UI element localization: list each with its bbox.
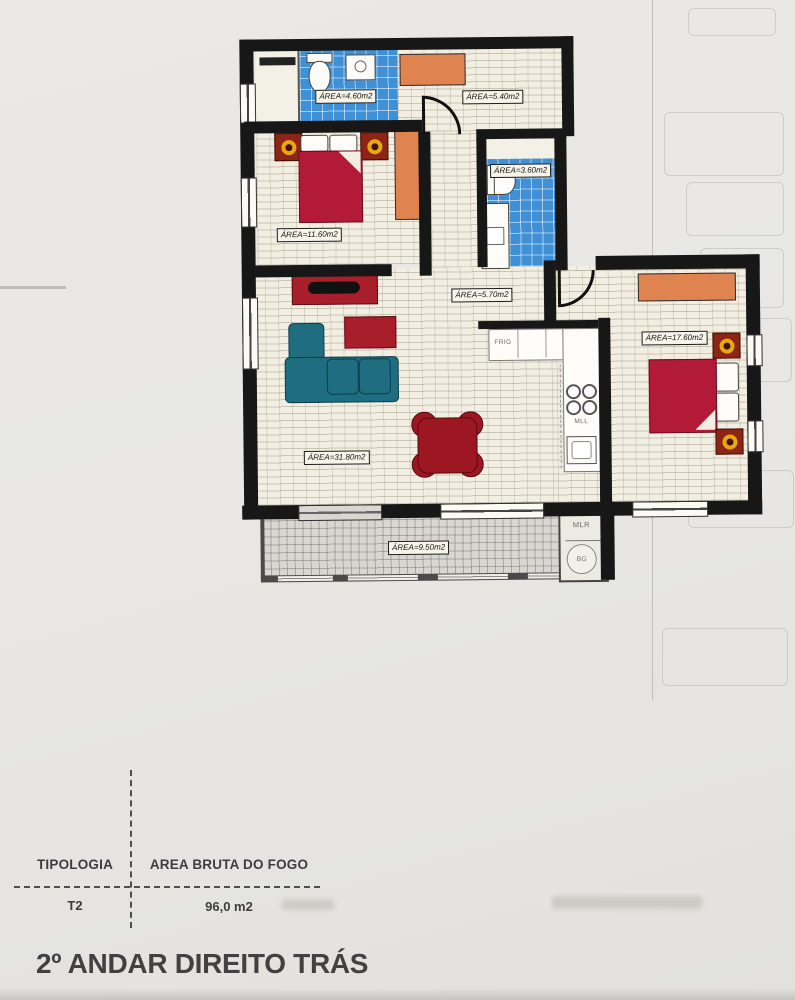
table-value-area-bruta: 96,0 m2 [140,899,318,914]
pillow [715,362,739,391]
area-label-bedroom1: ÁREA=11.60m2 [277,228,342,243]
stove-burner [582,384,597,399]
bedroom2-shelf [638,272,736,301]
pillow [329,134,357,151]
wall [246,264,392,278]
area-label-hall: ÁREA=5.40m2 [462,90,523,105]
wall [600,502,615,580]
table-header-area-bruta: AREA BRUTA DO FOGO [140,857,318,872]
toilet-icon [308,61,330,93]
wall [544,260,557,322]
area-label-hall2: ÁREA=5.70m2 [451,288,512,303]
table-header-tipologia: TIPOLOGIA [20,857,130,872]
bed-sheet-fold [695,410,715,430]
wall [476,128,566,139]
stove-burner [566,384,581,399]
wall [556,256,562,270]
wall [244,120,422,134]
coffee-table [344,316,396,349]
boiler-circle: BG [567,544,597,574]
entry-shelf [259,57,295,65]
bath-sink [486,227,504,245]
window [241,177,258,227]
tv-icon [308,281,360,294]
stove-burner [582,400,597,415]
table-divider-horizontal [14,886,320,888]
hall-cabinet [399,53,465,86]
window [746,334,762,366]
table-value-tipologia: T2 [20,898,130,913]
sofa-cushion [327,358,359,394]
nightstand-lamp [360,132,388,160]
sink-basin [354,60,366,72]
page-title: 2º ANDAR DIREITO TRÁS [36,948,368,980]
kitchen-sink-basin [571,441,591,459]
floorplan: FRIG MLL MLR BG [0,0,795,1000]
fridge-label: FRIG [489,339,516,346]
door-leaf [558,270,561,304]
dishwasher-label: MLL [567,418,595,425]
area-label-living: ÁREA=31.80m2 [304,450,370,465]
area-label-bedroom2: ÁREA=17.60m2 [642,331,708,346]
wall [476,137,487,267]
door-leaf [422,96,425,134]
nightstand-lamp [712,332,740,358]
stove-burner [566,400,581,415]
area-label-balcony: ÁREA=9.50m2 [388,540,449,555]
window [240,83,256,123]
area-label-bathroom1: ÁREA=4.60m2 [315,89,376,104]
window [747,420,763,452]
wall [418,132,432,276]
wall [596,254,760,270]
wardrobe [394,128,421,220]
wall [746,254,763,514]
wall [561,36,574,136]
dining-table [417,417,478,474]
wall [554,136,567,270]
wall [478,320,598,329]
balcony-wall [260,519,265,579]
window [242,297,259,369]
washer-label: MLR [560,520,602,529]
area-label-bathroom2: ÁREA=3.60m2 [490,163,551,178]
table-divider-vertical [130,770,132,928]
balcony-door [298,504,382,521]
window [440,503,544,520]
pillow [715,392,739,421]
bed-sheet-fold [338,151,360,173]
corridor-floor [430,131,477,267]
railing-segment [438,574,508,580]
railing-segment [348,575,418,581]
scanned-floorplan-page: FRIG MLL MLR BG [0,0,795,1000]
wall [598,318,612,514]
nightstand-lamp [715,428,743,454]
railing-segment [278,576,333,582]
sofa-cushion [359,358,391,394]
pillow [300,135,328,152]
scan-shadow [0,988,795,1000]
window [632,501,708,518]
